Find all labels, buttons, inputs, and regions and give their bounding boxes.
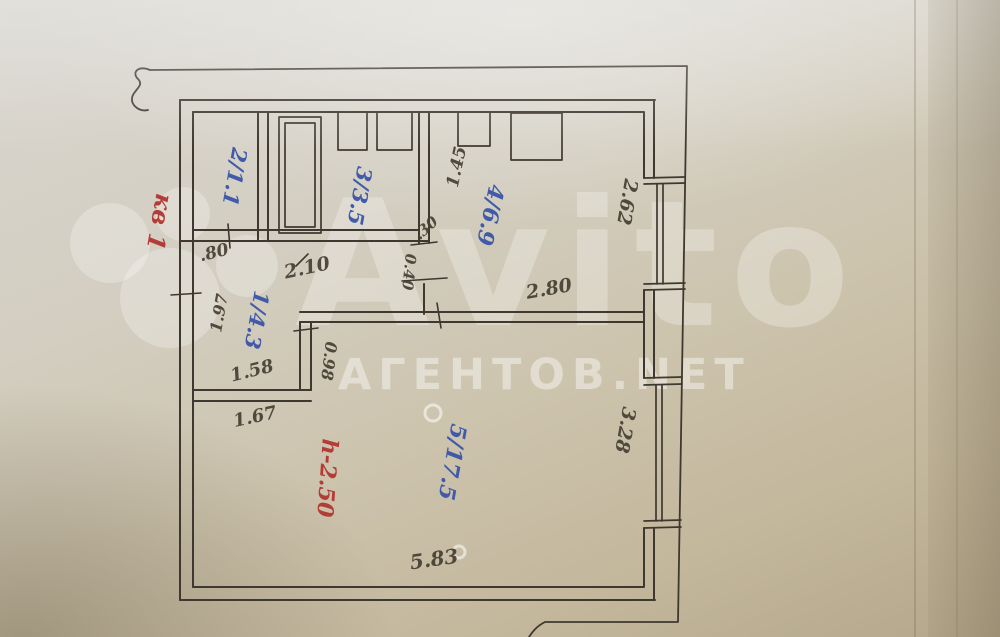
flat-perimeter-walls (180, 100, 655, 600)
fixtures (279, 112, 562, 233)
floor-plan-drawing (0, 0, 1000, 637)
building-cut-squiggle (132, 68, 150, 110)
window-kitchen (644, 177, 685, 290)
note-ceiling-height: h-2.50 (311, 438, 342, 518)
dim-door-stub: 0.40 (398, 253, 420, 291)
scanned-floor-plan-photo: Avito АГЕНТОВ.NET (0, 0, 1000, 637)
window-living (644, 377, 682, 528)
